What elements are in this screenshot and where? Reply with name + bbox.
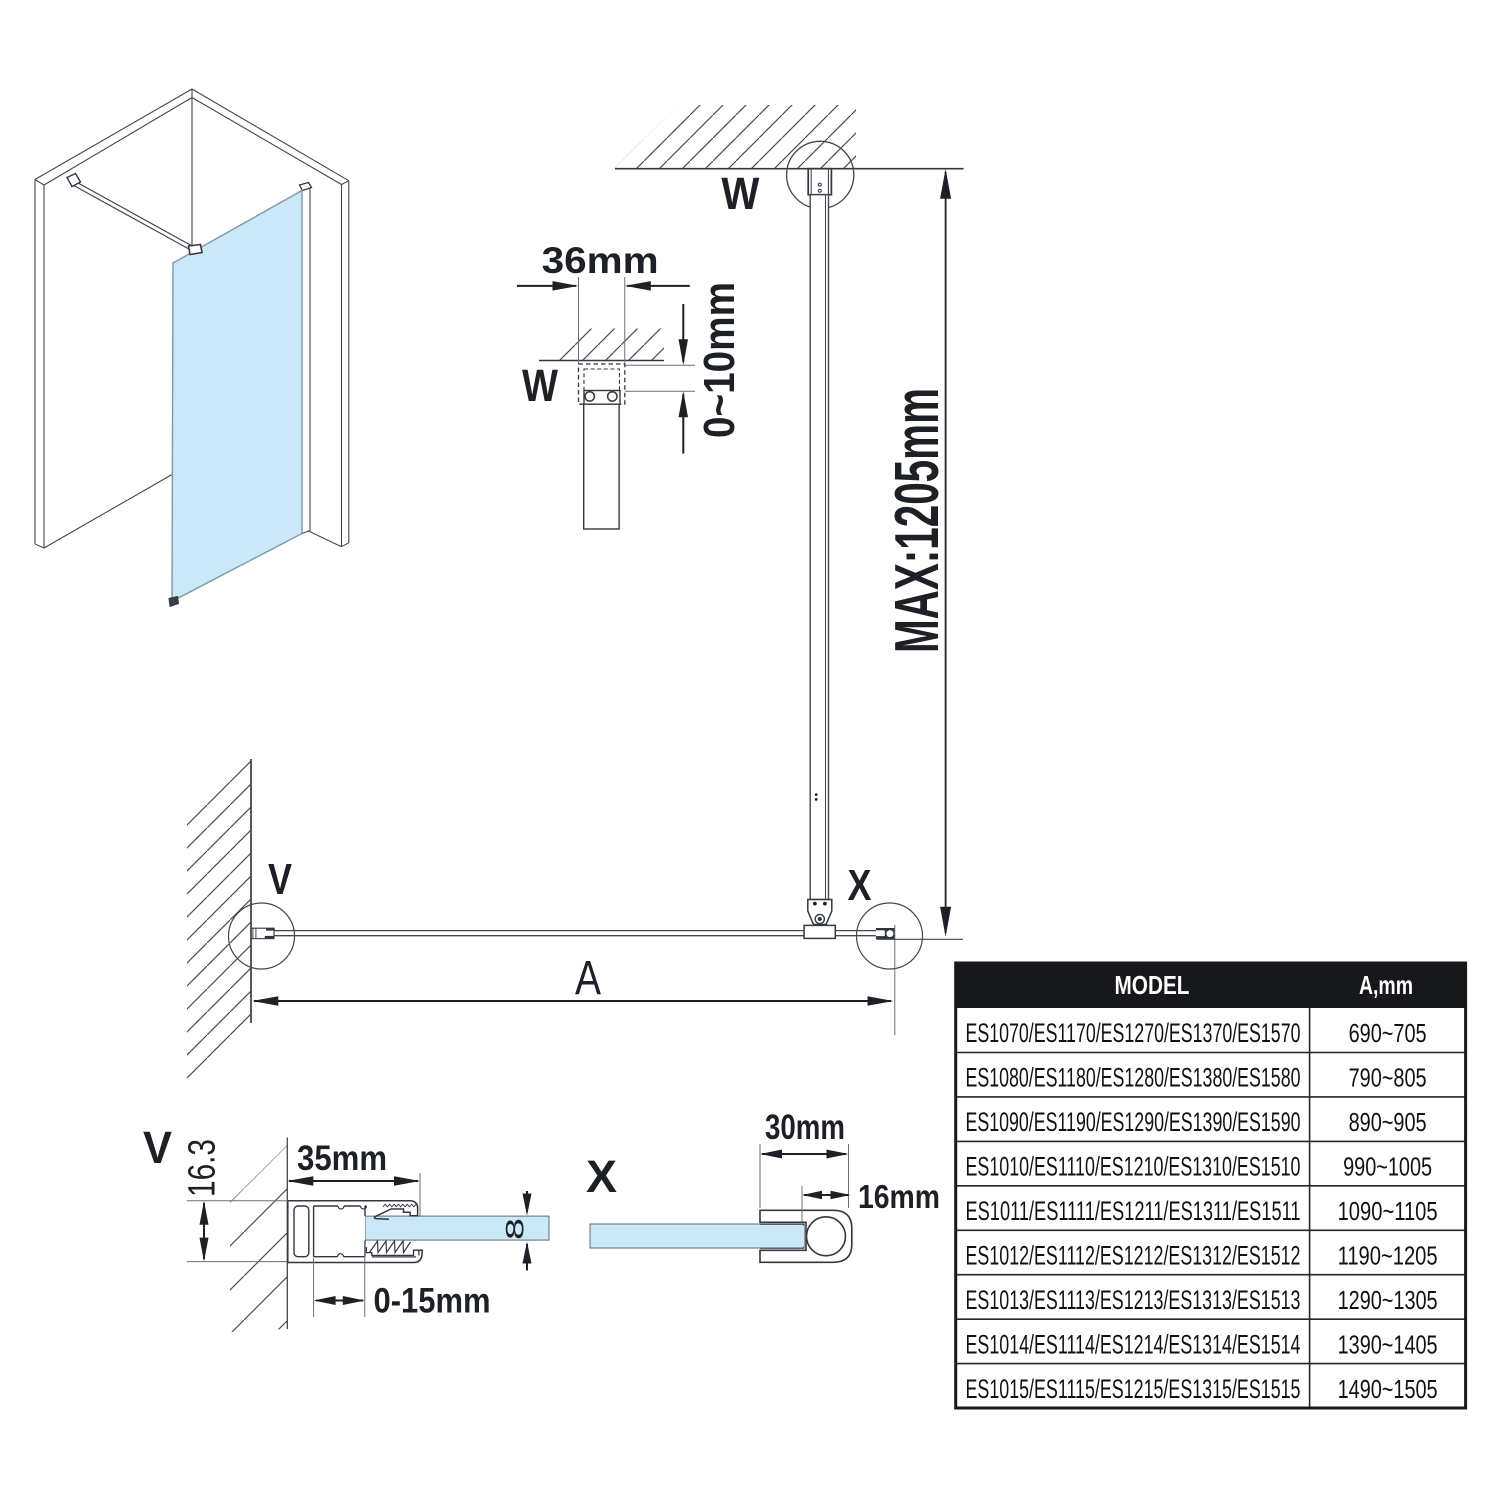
svg-text:1290~1305: 1290~1305 <box>1338 1285 1438 1315</box>
svg-text:ES1013/ES1113/ES1213/ES1313/ES: ES1013/ES1113/ES1213/ES1313/ES1513 <box>966 1285 1301 1315</box>
svg-text:1190~1205: 1190~1205 <box>1338 1241 1438 1271</box>
svg-text:ES1080/ES1180/ES1280/ES1380/ES: ES1080/ES1180/ES1280/ES1380/ES1580 <box>966 1063 1301 1093</box>
svg-text:16mm: 16mm <box>858 1178 940 1215</box>
svg-text:MODEL: MODEL <box>1115 970 1190 1000</box>
svg-text:0-15mm: 0-15mm <box>374 1282 491 1321</box>
svg-text:1390~1405: 1390~1405 <box>1338 1329 1438 1359</box>
svg-text:30mm: 30mm <box>765 1108 845 1147</box>
svg-text:0~10mm: 0~10mm <box>695 282 744 438</box>
svg-text:ES1011/ES1111/ES1211/ES1311/ES: ES1011/ES1111/ES1211/ES1311/ES1511 <box>966 1196 1301 1226</box>
svg-text:X: X <box>586 1151 617 1202</box>
svg-text:V: V <box>268 855 293 904</box>
svg-text:16.3: 16.3 <box>182 1139 224 1197</box>
svg-text:1490~1505: 1490~1505 <box>1338 1374 1438 1404</box>
svg-text:36mm: 36mm <box>542 240 659 281</box>
svg-text:X: X <box>848 861 872 910</box>
svg-text:ES1015/ES1115/ES1215/ES1315/ES: ES1015/ES1115/ES1215/ES1315/ES1515 <box>966 1374 1301 1404</box>
svg-text:890~905: 890~905 <box>1349 1107 1427 1137</box>
svg-text:W: W <box>721 168 759 219</box>
svg-text:35mm: 35mm <box>297 1139 387 1178</box>
svg-text:1090~1105: 1090~1105 <box>1338 1196 1438 1226</box>
svg-text:ES1012/ES1112/ES1212/ES1312/ES: ES1012/ES1112/ES1212/ES1312/ES1512 <box>966 1241 1301 1271</box>
svg-text:8: 8 <box>502 1218 530 1240</box>
svg-text:990~1005: 990~1005 <box>1343 1152 1432 1182</box>
svg-text:ES1010/ES1110/ES1210/ES1310/ES: ES1010/ES1110/ES1210/ES1310/ES1510 <box>966 1152 1301 1182</box>
svg-text:W: W <box>522 360 558 411</box>
svg-text:ES1090/ES1190/ES1290/ES1390/ES: ES1090/ES1190/ES1290/ES1390/ES1590 <box>966 1107 1301 1137</box>
svg-text:MAX:1205mm: MAX:1205mm <box>883 388 952 653</box>
svg-text:790~805: 790~805 <box>1349 1063 1427 1093</box>
svg-text:690~705: 690~705 <box>1349 1018 1427 1048</box>
svg-text:A: A <box>575 952 601 1005</box>
svg-text:ES1070/ES1170/ES1270/ES1370/ES: ES1070/ES1170/ES1270/ES1370/ES1570 <box>966 1018 1301 1048</box>
svg-text:A,mm: A,mm <box>1359 970 1413 1000</box>
svg-text:ES1014/ES1114/ES1214/ES1314/ES: ES1014/ES1114/ES1214/ES1314/ES1514 <box>966 1329 1301 1359</box>
svg-text:V: V <box>143 1122 172 1173</box>
